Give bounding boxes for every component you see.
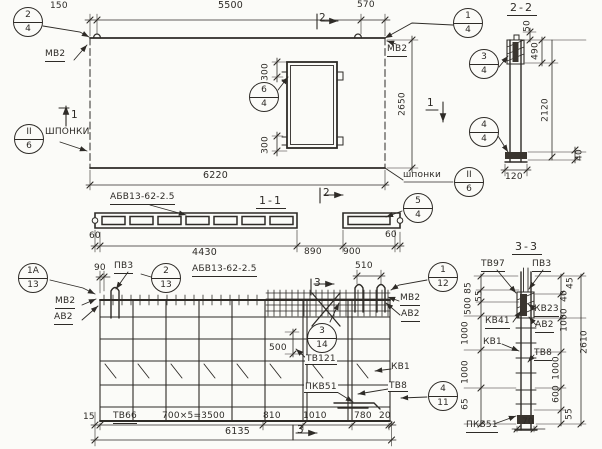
- cut-3-marker-top: 3: [314, 278, 321, 289]
- dim-70: 70: [522, 418, 534, 427]
- balloon-3-4-bottom: 4: [470, 65, 498, 76]
- balloon-6-4: 6 4: [249, 82, 279, 112]
- dim-570: 570: [357, 1, 375, 10]
- label-tv8-33: ТВ8: [534, 349, 552, 361]
- dim-300-door-bottom: 300: [262, 136, 271, 154]
- dim-120: 120: [505, 173, 523, 182]
- balloon-keys-right: II 6: [454, 167, 484, 197]
- dim-890: 890: [304, 248, 322, 257]
- drawing-sheet: 150 5500 570 2 МВ2 МВ2 2650 300 300 1 1 …: [0, 0, 602, 449]
- dim-700x5-3500: 700×5=3500: [162, 412, 225, 421]
- label-tv121: ТВ121: [305, 355, 337, 365]
- dim-40: 40: [576, 149, 585, 161]
- balloon-1-12-bottom: 12: [429, 278, 457, 289]
- balloon-1-12-top: 1: [429, 263, 457, 278]
- balloon-5-4-top: 5: [404, 194, 432, 209]
- balloon-2-13: 2 13: [151, 263, 181, 293]
- dim-150: 150: [50, 2, 68, 11]
- cut-1-marker-left: 1: [71, 110, 78, 121]
- label-tv97: ТВ97: [481, 260, 505, 272]
- balloon-1-4-bottom: 4: [454, 24, 482, 35]
- balloon-2-4-top: 2: [14, 8, 42, 23]
- dim-1000-right-a: 1000: [561, 308, 570, 332]
- balloon-6-4-top: 6: [250, 83, 278, 98]
- balloon-1-12: 1 12: [428, 262, 458, 292]
- dim-500-diag: 500: [268, 344, 288, 353]
- dim-50: 50: [524, 20, 533, 32]
- balloon-4-4-top: 4: [470, 118, 498, 133]
- dim-490: 490: [532, 42, 541, 60]
- balloon-keys-left: II 6: [14, 124, 44, 154]
- balloon-3-14-bottom: 14: [308, 339, 336, 350]
- label-mv2-bottom-left: МВ2: [55, 297, 75, 309]
- balloon-1a-13: 1А 13: [18, 263, 48, 293]
- balloon-4-11-top: 4: [429, 382, 457, 397]
- balloon-2-13-top: 2: [152, 264, 180, 279]
- dim-90: 90: [94, 264, 106, 273]
- dim-6135: 6135: [225, 427, 250, 437]
- dim-1000-left-a: 1000: [462, 321, 471, 345]
- balloon-1-4: 1 4: [453, 8, 483, 38]
- cut-2-marker-top: 2: [319, 13, 326, 24]
- dim-510: 510: [355, 262, 373, 271]
- balloon-keys-left-top: II: [15, 125, 43, 140]
- dim-45: 45: [567, 277, 576, 289]
- balloon-keys-right-top: II: [455, 168, 483, 183]
- balloon-2-4-bottom: 4: [14, 23, 42, 34]
- dim-1010: 1010: [303, 412, 327, 421]
- label-shponki-right: шпонки: [403, 171, 441, 180]
- cut-3-marker-bottom: 3: [297, 425, 304, 436]
- dim-65: 65: [462, 398, 471, 410]
- dim-780: 780: [354, 412, 372, 421]
- section-title-3-3: 3-3: [512, 241, 542, 255]
- dim-900: 900: [343, 248, 361, 257]
- dim-2650: 2650: [399, 92, 408, 116]
- dim-2120: 2120: [542, 98, 551, 122]
- dim-20: 20: [379, 412, 391, 421]
- label-pv3-left: ПВ3: [114, 262, 133, 274]
- balloon-3-14: 3 14: [307, 323, 337, 353]
- balloon-5-4-bottom: 4: [404, 209, 432, 220]
- balloon-3-4: 3 4: [469, 49, 499, 79]
- cut-1-marker-right: 1: [427, 98, 434, 109]
- label-kv23: КВ23: [534, 305, 559, 317]
- label-tv66: ТВ66: [113, 412, 137, 424]
- cut-2-marker-mid: 2: [323, 188, 330, 199]
- balloon-3-4-top: 3: [470, 50, 498, 65]
- label-av2-bottom-left: АВ2: [54, 313, 73, 325]
- label-kv1-33: КВ1: [483, 338, 502, 347]
- balloon-3-14-top: 3: [308, 324, 336, 339]
- label-mv2-bottom-right: МВ2: [400, 294, 420, 306]
- label-pkv51-33: ПКВ51: [466, 421, 498, 433]
- label-mv2-top-left: МВ2: [45, 50, 65, 62]
- dim-4430: 4430: [192, 248, 217, 258]
- rebar-plan-title: АБВ13-62-2.5: [192, 265, 257, 277]
- balloon-4-4: 4 4: [469, 117, 499, 147]
- dim-55-bottom: 55: [566, 408, 575, 420]
- dim-300-door-top: 300: [262, 63, 271, 81]
- dim-15: 15: [83, 413, 95, 422]
- balloon-2-13-bottom: 13: [152, 279, 180, 290]
- dim-6220: 6220: [203, 171, 228, 181]
- label-shponki-left: ШПОНКИ: [45, 128, 90, 137]
- dim-5500: 5500: [218, 1, 243, 11]
- label-mesh-mark-1-1: АБВ13-62-2.5: [110, 193, 175, 205]
- balloon-4-11: 4 11: [428, 381, 458, 411]
- section-title-1-1: 1-1: [256, 195, 286, 209]
- balloon-4-11-bottom: 11: [429, 397, 457, 408]
- dim-500-33: 500: [465, 297, 474, 315]
- dim-55-top: 55: [476, 290, 485, 302]
- dim-60-right: 60: [385, 231, 397, 240]
- label-av2-bottom-right: АВ2: [401, 310, 420, 322]
- balloon-1a-13-top: 1А: [19, 264, 47, 279]
- balloon-5-4: 5 4: [403, 193, 433, 223]
- balloon-2-4: 2 4: [13, 7, 43, 37]
- label-av2-33: АВ2: [535, 321, 554, 333]
- dim-2610: 2610: [581, 330, 590, 354]
- label-tv8-right: ТВ8: [388, 382, 408, 392]
- dim-1000-left-b: 1000: [462, 360, 471, 384]
- dim-600: 600: [553, 385, 562, 403]
- balloon-keys-left-bottom: 6: [15, 140, 43, 151]
- balloon-1-4-top: 1: [454, 9, 482, 24]
- label-kv1-right: КВ1: [391, 363, 410, 372]
- label-pv3-33: ПВ3: [532, 260, 551, 272]
- section-title-2-2: 2-2: [507, 2, 537, 16]
- label-kv41: КВ41: [485, 317, 510, 329]
- balloon-6-4-bottom: 4: [250, 98, 278, 109]
- dim-85: 85: [465, 282, 474, 294]
- dim-1000-right-b: 1000: [553, 356, 562, 380]
- dim-40-33: 40: [561, 290, 570, 302]
- balloon-4-4-bottom: 4: [470, 133, 498, 144]
- label-mv2-top-right: МВ2: [387, 45, 407, 57]
- balloon-1a-13-bottom: 13: [19, 279, 47, 290]
- dim-810: 810: [263, 412, 281, 421]
- drawing-linework: [0, 0, 602, 449]
- label-pkv51: ПКВ51: [304, 383, 338, 393]
- dim-60-left: 60: [89, 232, 101, 241]
- balloon-keys-right-bottom: 6: [455, 183, 483, 194]
